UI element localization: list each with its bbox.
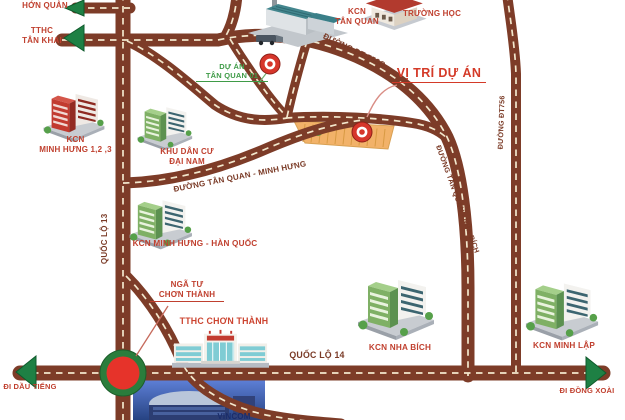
- label-kcn-minh-hung-han-quoc: KCN MINH HƯNG - HÀN QUỐC: [110, 239, 280, 249]
- building-tthc-chon-thanh-icon: [172, 330, 269, 368]
- label-khu-dan-cu-dai-nam: KHU DÂN CƯ ĐẠI NAM: [143, 147, 231, 167]
- label-tthc-chon-thanh: TTHC CHƠN THÀNH: [176, 316, 272, 327]
- vi-tri-callout-line: [367, 85, 397, 117]
- marker-vi-tri-icon: [352, 122, 372, 142]
- building-kcn-minh-lap-icon: [526, 284, 598, 341]
- label-nga-tu-chon-thanh: NGÃ TƯ CHƠN THÀNH: [150, 280, 224, 302]
- label-vincom: VINCOM: [202, 412, 266, 420]
- roundabout-icon: [100, 350, 146, 396]
- label-quoc-lo-14: QUỐC LỘ 14: [284, 350, 350, 361]
- label-tthc-tan-khai: TTHC TÂN KHAI: [6, 26, 78, 46]
- label-di-dong-xoai: ĐI ĐỒNG XOÀI: [552, 386, 622, 395]
- label-vi-tri-du-an: VỊ TRÍ DỰ ÁN: [392, 66, 486, 83]
- label-tthc-hon-quan: TTHC HỚN QUẢN: [6, 0, 84, 11]
- building-kcn-nha-bich-icon: [358, 280, 434, 340]
- label-kcn-minh-lap: KCN MINH LẬP: [520, 341, 608, 351]
- building-khu-dan-cu-dai-nam-icon: [137, 107, 192, 150]
- label-kcn-nha-bich: KCN NHA BÍCH: [356, 343, 444, 353]
- label-kcn-tan-quan: KCN TÂN QUAN: [318, 7, 396, 27]
- label-du-an-tan-quan-01: DỰ ÁN TÂN QUAN 01: [196, 62, 268, 82]
- label-kcn-minh-hung-123: KCN MINH HƯNG 1,2 ,3: [28, 135, 123, 155]
- label-di-dau-tieng: ĐI DẦU TIẾNG: [0, 382, 60, 391]
- label-truong-hoc: TRƯỜNG HỌC: [396, 9, 468, 19]
- arrow-right-dong-xoai-icon: [586, 357, 606, 389]
- map-canvas: TTHC HỚN QUẢN TTHC TÂN KHAI KCN TÂN QUAN…: [0, 0, 625, 420]
- label-quoc-lo-13: QUỐC LỘ 13: [100, 194, 110, 284]
